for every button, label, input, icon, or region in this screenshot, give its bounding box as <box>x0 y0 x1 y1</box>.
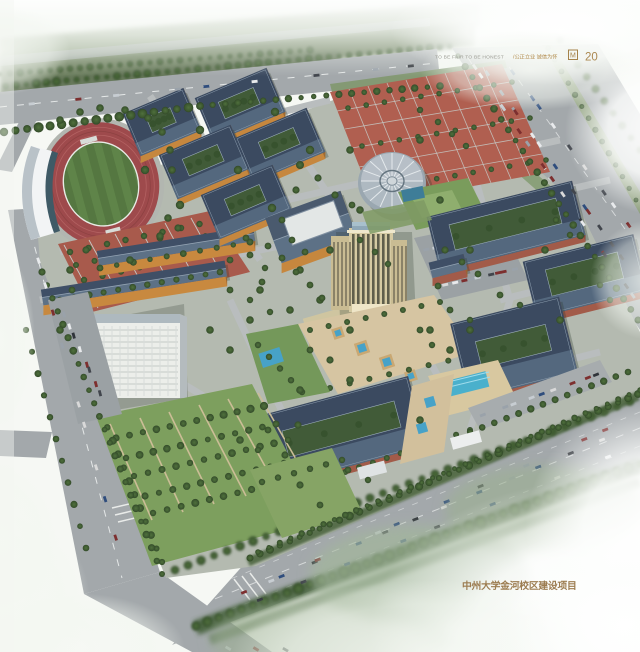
svg-text:/公正立业 诚信为怀: /公正立业 诚信为怀 <box>513 53 557 61</box>
svg-text:TO BE FAIR TO BE HONEST: TO BE FAIR TO BE HONEST <box>435 55 504 61</box>
svg-text:20: 20 <box>585 52 598 64</box>
svg-text:M: M <box>570 53 576 60</box>
svg-text:中州大学金河校区建设项目: 中州大学金河校区建设项目 <box>462 579 577 592</box>
